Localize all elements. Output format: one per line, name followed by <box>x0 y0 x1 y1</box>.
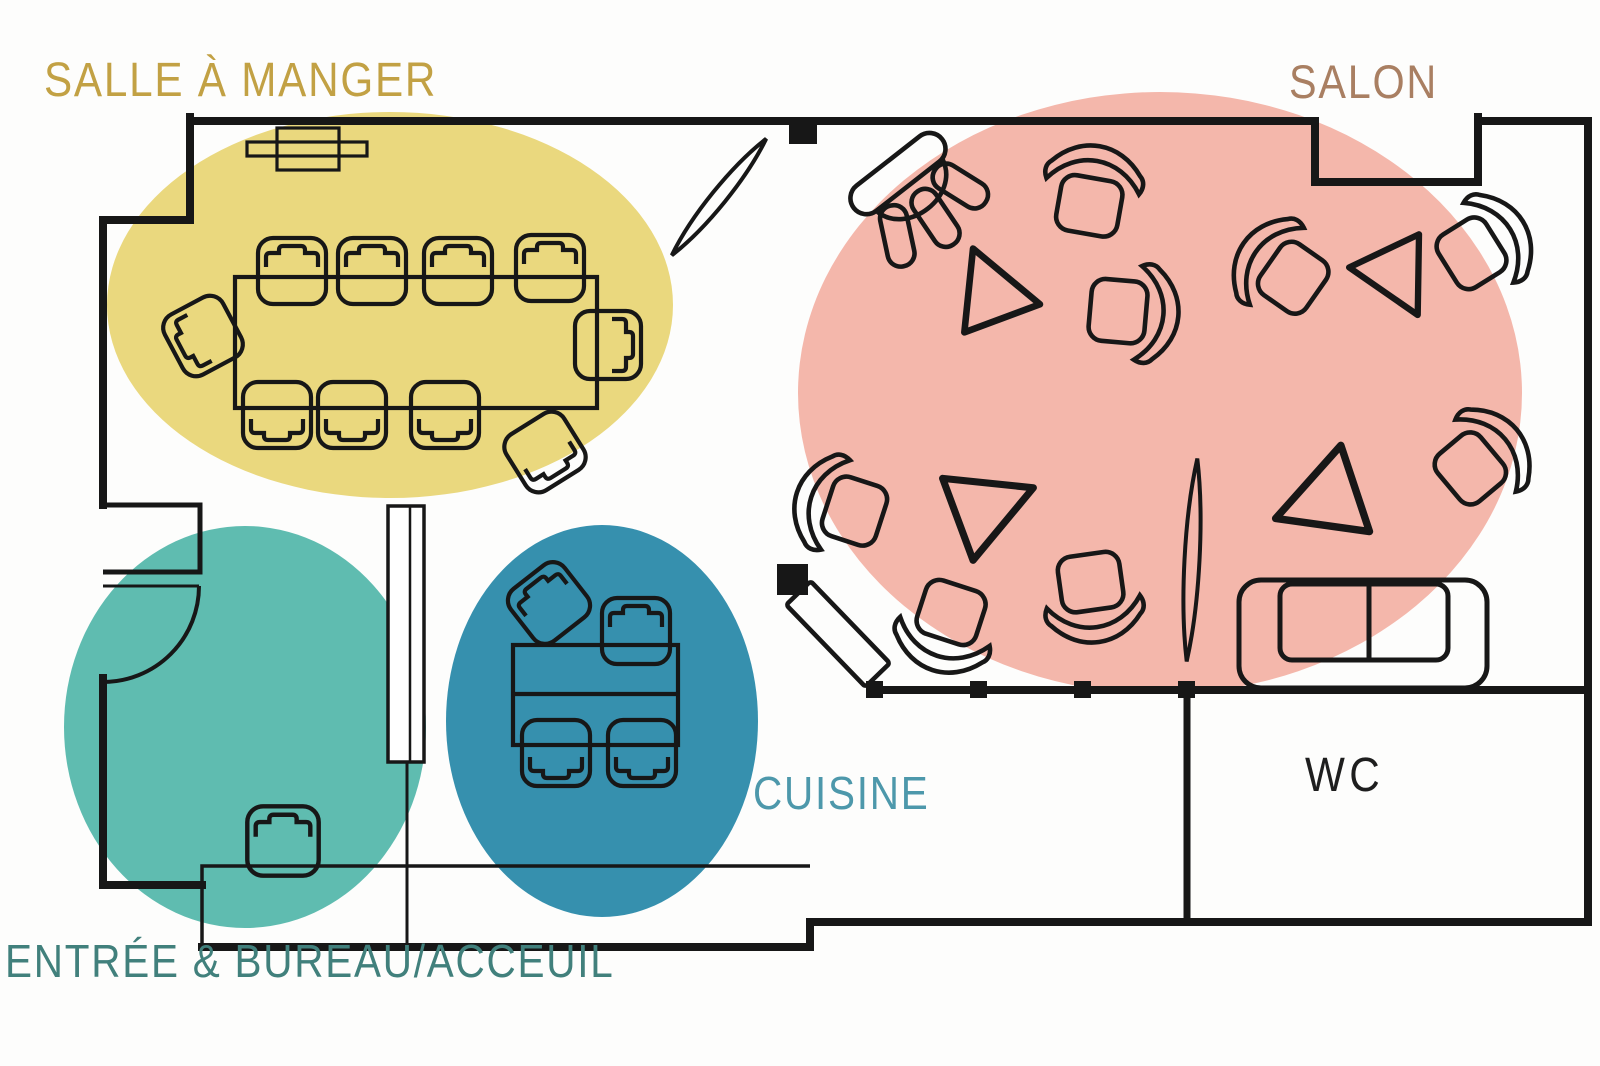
wall-marker-icon <box>789 117 817 144</box>
partition-screen <box>388 506 424 945</box>
plant-leaf-icon <box>666 134 772 260</box>
door-leaf-icon <box>786 581 890 687</box>
wall-marker-icon <box>1074 681 1091 698</box>
label-salle-a-manger: SALLE À MANGER <box>44 57 437 105</box>
wall-marker-icon <box>970 681 987 698</box>
wall-marker-icon <box>1178 681 1195 698</box>
floor-plan: SALLE À MANGER SALON CUISINE ENTRÉE & BU… <box>0 0 1600 1066</box>
label-cuisine: CUISINE <box>753 770 930 816</box>
label-entree-bureau: ENTRÉE & BUREAU/ACCEUIL <box>5 938 615 984</box>
floorplan-svg <box>0 0 1600 1066</box>
label-salon: SALON <box>1289 58 1438 105</box>
label-wc: WC <box>1305 752 1384 800</box>
zone-cuisine <box>446 525 758 917</box>
wall-marker-icon <box>866 681 883 698</box>
wall-marker-icon <box>777 564 808 595</box>
